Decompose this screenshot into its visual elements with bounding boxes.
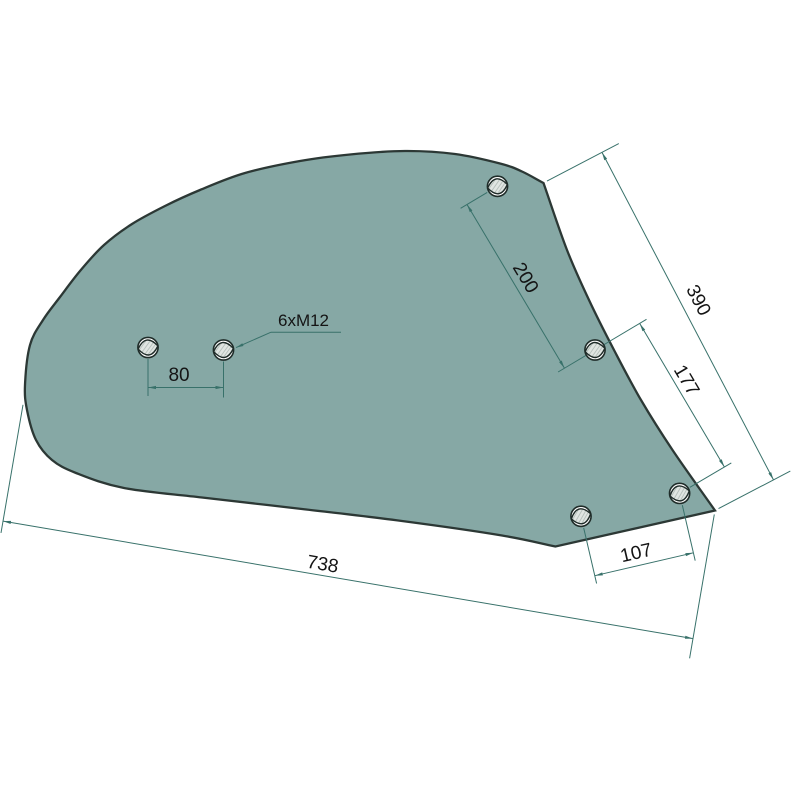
svg-text:80: 80 (168, 365, 189, 386)
svg-text:6xM12: 6xM12 (278, 311, 329, 330)
